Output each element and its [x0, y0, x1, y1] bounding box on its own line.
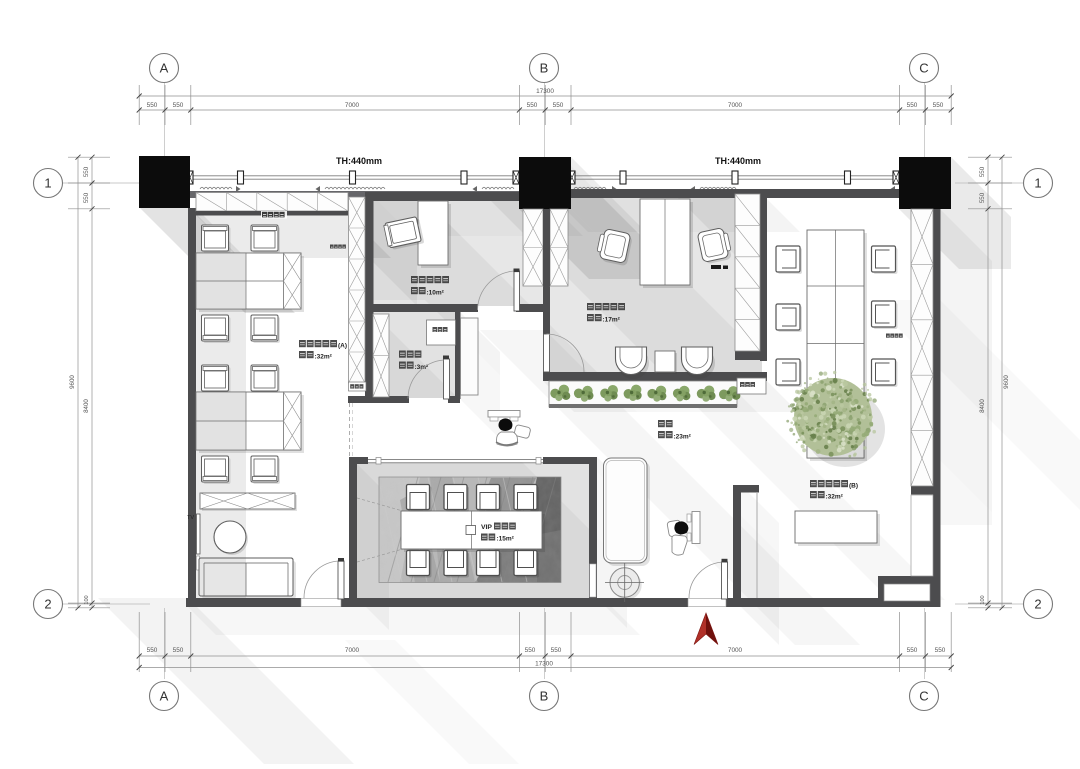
svg-text:550: 550	[907, 647, 918, 654]
svg-text:550: 550	[907, 102, 918, 109]
svg-text:550: 550	[933, 102, 944, 109]
svg-text:7000: 7000	[345, 102, 360, 109]
svg-text:17300: 17300	[535, 661, 553, 668]
svg-text:100: 100	[980, 595, 986, 604]
svg-text:VIP: VIP	[481, 524, 492, 531]
svg-text:TH:440mm: TH:440mm	[715, 156, 761, 166]
svg-text:C: C	[919, 689, 928, 704]
svg-text::10m²: :10m²	[427, 290, 445, 297]
svg-text:1: 1	[1034, 176, 1041, 191]
svg-text::32m²: :32m²	[826, 494, 844, 501]
svg-text:17300: 17300	[536, 88, 554, 95]
svg-text:550: 550	[83, 192, 90, 203]
svg-text:9600: 9600	[69, 375, 76, 389]
svg-text:550: 550	[525, 647, 536, 654]
svg-text:550: 550	[147, 647, 158, 654]
svg-text:A: A	[160, 689, 169, 704]
svg-text:B: B	[540, 61, 549, 76]
svg-text:9600: 9600	[1003, 375, 1010, 389]
svg-text:B: B	[540, 689, 549, 704]
svg-text::17m²: :17m²	[603, 317, 621, 324]
svg-text:550: 550	[979, 166, 986, 177]
svg-text:550: 550	[527, 102, 538, 109]
svg-text:550: 550	[935, 647, 946, 654]
svg-text:550: 550	[979, 192, 986, 203]
svg-text::23m²: :23m²	[674, 434, 692, 441]
svg-text:TH:440mm: TH:440mm	[336, 156, 382, 166]
svg-text:C: C	[919, 61, 928, 76]
svg-text:2: 2	[44, 597, 51, 612]
svg-text:A: A	[160, 61, 169, 76]
svg-text:550: 550	[551, 647, 562, 654]
svg-text:8400: 8400	[83, 399, 90, 413]
svg-text:550: 550	[147, 102, 158, 109]
svg-text::32m²: :32m²	[315, 354, 333, 361]
svg-text:(B): (B)	[849, 483, 858, 490]
svg-text:7000: 7000	[345, 647, 360, 654]
svg-text:TV: TV	[187, 515, 194, 521]
svg-text:7000: 7000	[728, 102, 743, 109]
svg-text:7000: 7000	[728, 647, 743, 654]
svg-text:1: 1	[44, 176, 51, 191]
svg-text:8400: 8400	[979, 399, 986, 413]
svg-text:100: 100	[84, 595, 90, 604]
svg-text:550: 550	[173, 647, 184, 654]
svg-text:550: 550	[553, 102, 564, 109]
svg-text::15m²: :15m²	[497, 536, 515, 543]
svg-text:(A): (A)	[338, 343, 347, 350]
svg-text:550: 550	[83, 166, 90, 177]
svg-text:2: 2	[1034, 597, 1041, 612]
svg-text:550: 550	[173, 102, 184, 109]
